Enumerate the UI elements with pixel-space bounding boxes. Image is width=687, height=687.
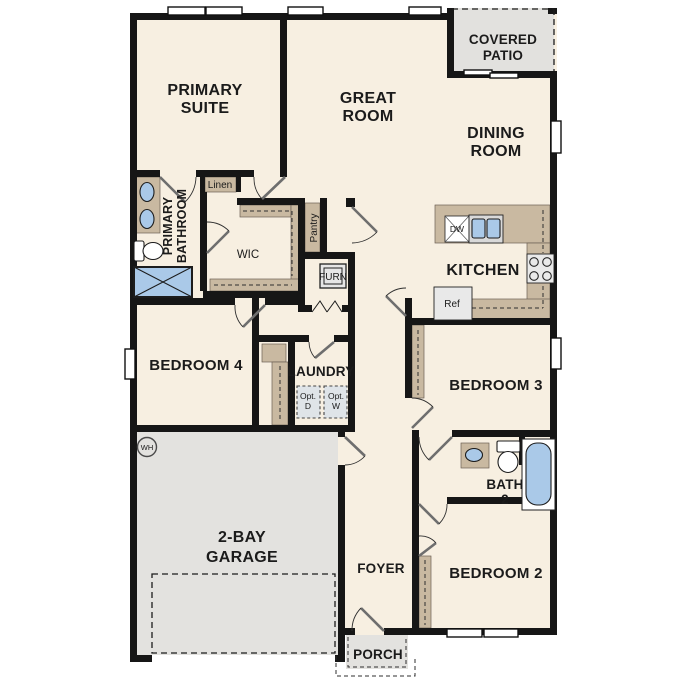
svg-text:Pantry: Pantry [309,214,320,243]
primary-suite-label: PRIMARY [167,82,242,99]
covered-patio-label: COVERED [469,32,537,47]
svg-text:BATHROOM: BATHROOM [175,189,189,263]
stove-icon [527,254,554,283]
linen-label: Linen [208,180,232,191]
toilet-icon [497,441,520,452]
wall-segment [200,177,205,192]
wall-segment [130,298,235,305]
laundry-label: LAUNDRY [288,364,355,379]
dishwasher-label: DW [450,224,464,234]
wall-segment [288,335,309,342]
great-room-label: GREAT [340,90,396,107]
floor-plan-drawing: PRIMARY SUITE GREAT ROOM COVERED PATIO D… [0,0,687,687]
dining-room-label: ROOM [471,143,522,160]
dining-room-label: DINING [467,125,525,142]
toilet-icon [498,452,518,473]
wall-segment [348,335,355,432]
furnace-label: FURN [319,272,347,283]
toilet-icon [143,243,163,260]
wall-segment [200,192,207,291]
vanity-sink-icon [140,183,154,202]
window [168,7,205,15]
window [551,338,561,369]
wall-segment [298,198,305,312]
wall-segment [346,198,355,207]
water-heater-label: WH [141,443,154,452]
bath2-label: 2 [501,492,509,507]
linen-closet-hall [262,344,286,362]
wall-segment [130,170,160,177]
wall-segment [342,305,355,312]
sliding-door-panel [464,70,492,75]
wall-segment [298,305,312,312]
pantry-label: Pantry [309,214,320,243]
refrigerator-label: Ref [444,299,460,310]
wall-segment [412,497,419,504]
garage-label: GARAGE [206,549,278,566]
vanity-sink-icon [466,449,483,462]
wall-segment [338,465,345,662]
wall-segment [348,252,355,335]
wall-segment [345,628,355,635]
wall-segment [237,198,305,205]
kitchen-label: KITCHEN [446,262,519,279]
window [125,349,135,379]
exterior-mask [130,662,357,687]
window [409,7,441,15]
kitchen-sink-icon [469,215,503,243]
wall-segment [452,430,557,437]
bath2-label: BATH [486,477,523,492]
wall-segment [305,252,355,259]
window [206,7,242,15]
garage-label: 2-BAY [218,529,266,546]
wall-segment [203,291,303,298]
bedroom3-label: BEDROOM 3 [449,377,543,394]
primary-suite-label: SUITE [181,100,230,117]
wall-segment [412,430,419,628]
window [551,121,561,153]
wall-segment [405,298,412,398]
bedroom4-label: BEDROOM 4 [149,357,243,374]
wic-label: WIC [237,249,259,261]
opt-washer-label: W [332,401,340,411]
window [447,629,482,637]
wall-segment [236,177,241,192]
wall-segment [280,13,287,177]
foyer-label: FOYER [357,561,405,576]
window [288,7,323,15]
floor-plan-page: PRIMARY SUITE GREAT ROOM COVERED PATIO D… [0,0,687,687]
wall-segment [320,198,327,259]
opt-dryer-label: Opt. [300,391,316,401]
wall-segment [130,13,137,662]
window [484,629,518,637]
svg-text:PRIMARY: PRIMARY [161,196,175,255]
bathtub-icon [522,439,555,510]
wall-segment [130,655,152,662]
wall-segment [288,335,295,432]
great-room-label: ROOM [343,108,394,125]
wall-segment [241,170,254,177]
primary-bathroom-label: PRIMARY BATHROOM [161,189,189,263]
shower-icon [134,267,192,297]
wall-segment [196,170,241,177]
exterior-mask [408,635,557,687]
vanity-sink-icon [140,210,154,229]
opt-washer-label: Opt. [328,391,344,401]
covered-patio-label: PATIO [483,48,523,63]
wall-segment [130,425,352,432]
porch-label: PORCH [353,647,403,662]
opt-dryer-label: D [305,401,311,411]
wall-segment [447,11,454,75]
sliding-door-panel [490,73,518,78]
bedroom2-label: BEDROOM 2 [449,565,543,582]
